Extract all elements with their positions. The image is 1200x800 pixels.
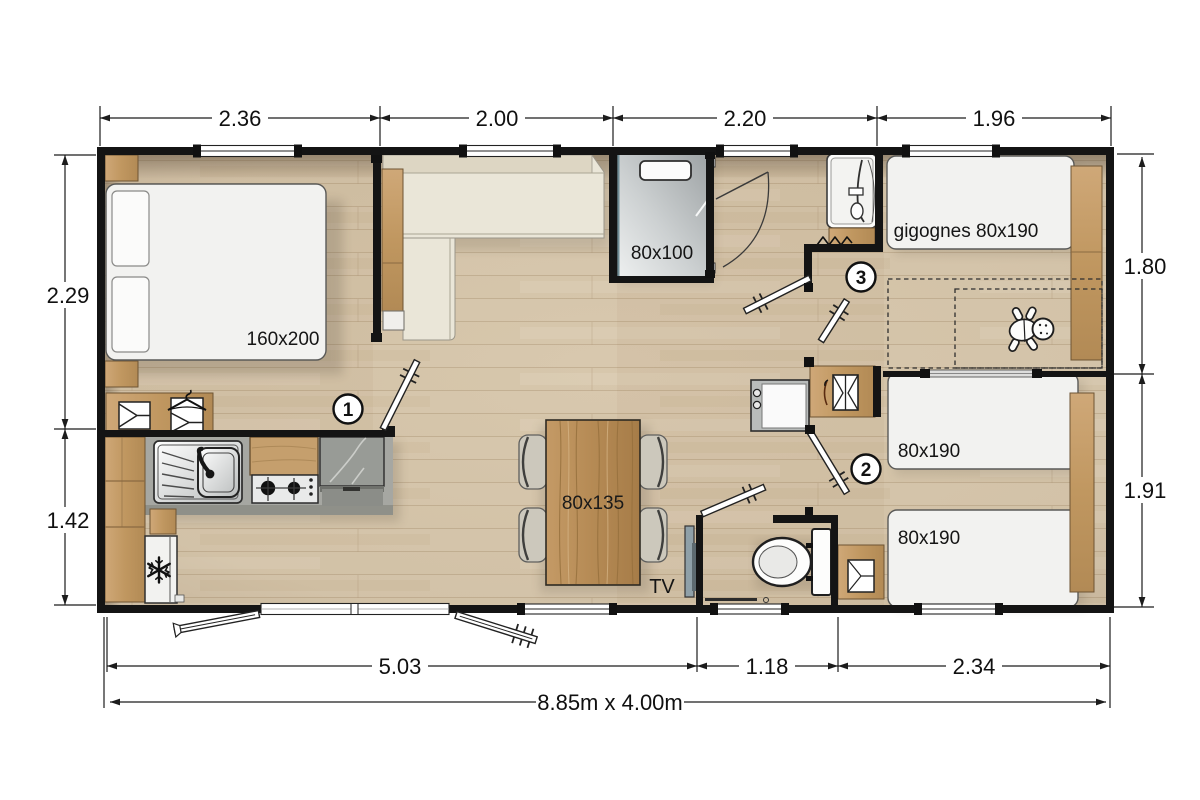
svg-text:80x135: 80x135 xyxy=(562,493,624,514)
svg-text:3: 3 xyxy=(856,268,867,289)
svg-text:80x190: 80x190 xyxy=(898,528,960,549)
svg-text:1.18: 1.18 xyxy=(746,654,789,679)
svg-text:gigognes 80x190: gigognes 80x190 xyxy=(894,221,1039,242)
svg-text:2: 2 xyxy=(861,460,872,481)
svg-text:80x190: 80x190 xyxy=(898,441,960,462)
svg-text:2.29: 2.29 xyxy=(47,283,90,308)
svg-text:1: 1 xyxy=(343,400,354,421)
svg-text:2.36: 2.36 xyxy=(219,106,262,131)
svg-text:2.20: 2.20 xyxy=(724,106,767,131)
svg-text:5.03: 5.03 xyxy=(379,654,422,679)
svg-text:1.91: 1.91 xyxy=(1124,478,1167,503)
svg-text:8.85m x 4.00m: 8.85m x 4.00m xyxy=(537,690,683,715)
svg-text:1.96: 1.96 xyxy=(973,106,1016,131)
svg-text:TV: TV xyxy=(649,576,675,598)
svg-text:1.42: 1.42 xyxy=(47,508,90,533)
svg-text:80x100: 80x100 xyxy=(631,243,693,264)
svg-text:2.34: 2.34 xyxy=(953,654,996,679)
svg-text:2.00: 2.00 xyxy=(476,106,519,131)
svg-text:160x200: 160x200 xyxy=(247,329,320,350)
svg-text:1.80: 1.80 xyxy=(1124,254,1167,279)
